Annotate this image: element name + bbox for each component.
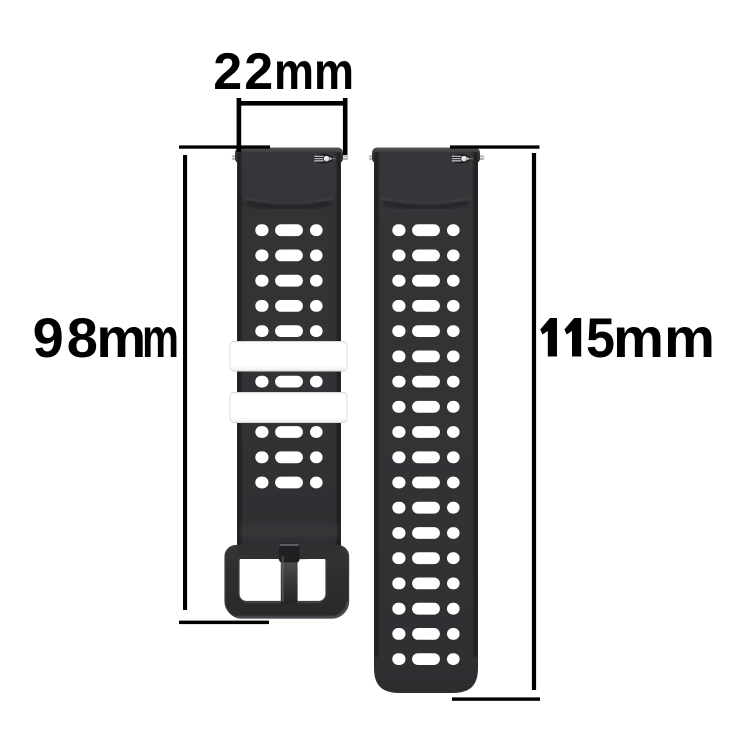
- svg-text:5: 5: [586, 306, 615, 369]
- svg-text:mm: mm: [274, 43, 354, 101]
- svg-text:m: m: [142, 306, 179, 369]
- svg-text:98m: 98m: [33, 306, 147, 369]
- svg-text:mm: mm: [613, 306, 715, 369]
